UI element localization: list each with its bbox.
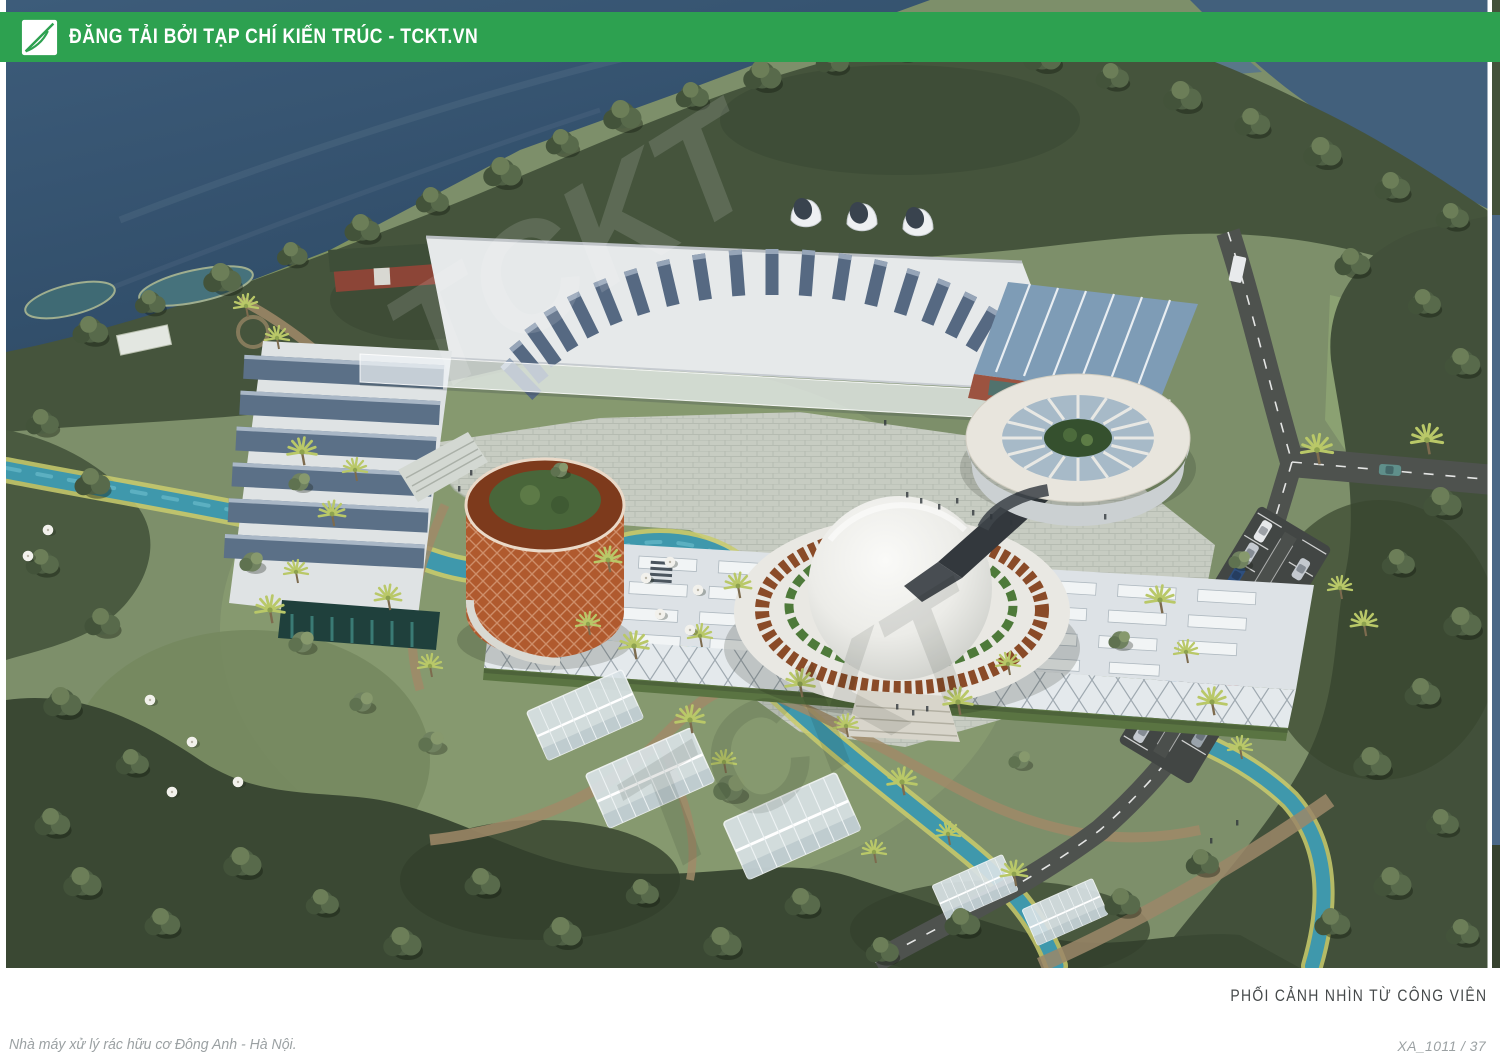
aerial-render: TCKT TCKT	[6, 0, 1500, 968]
ring-building	[960, 374, 1196, 528]
aerial-render-svg: TCKT TCKT	[6, 0, 1500, 968]
right-edge-strip	[1488, 0, 1500, 968]
panel-divider	[1488, 0, 1493, 968]
project-credit: Nhà máy xử lý rác hữu cơ Đông Anh - Hà N…	[9, 1036, 297, 1053]
corten-cylinder	[457, 459, 633, 670]
view-caption: PHỐI CẢNH NHÌN TỪ CÔNG VIÊN	[1230, 986, 1487, 1006]
tckt-logo-icon	[21, 19, 58, 56]
sheet-number: XA_1011 / 37	[1397, 1038, 1486, 1054]
publisher-banner: ĐĂNG TẢI BỞI TẠP CHÍ KIẾN TRÚC - TCKT.VN	[0, 12, 1500, 62]
banner-title: ĐĂNG TẢI BỞI TẠP CHÍ KIẾN TRÚC - TCKT.VN	[69, 25, 478, 49]
presentation-page: TCKT TCKT ĐĂNG TẢI BỞI TẠP CHÍ KIẾN TRÚC…	[0, 0, 1500, 1061]
